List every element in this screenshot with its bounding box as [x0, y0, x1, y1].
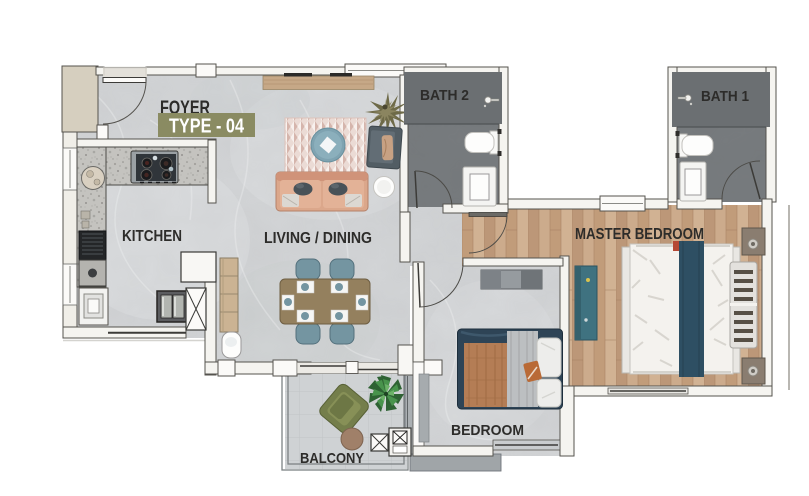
svg-text:KITCHEN: KITCHEN: [122, 228, 182, 245]
svg-text:LIVING / DINING: LIVING / DINING: [264, 230, 372, 247]
svg-text:BEDROOM: BEDROOM: [451, 422, 524, 439]
svg-text:BALCONY: BALCONY: [300, 450, 364, 467]
svg-text:MASTER BEDROOM: MASTER BEDROOM: [575, 226, 704, 243]
svg-text:TYPE - 04: TYPE - 04: [169, 116, 245, 138]
svg-text:BATH 2: BATH 2: [420, 87, 469, 104]
svg-text:BATH 1: BATH 1: [701, 88, 749, 105]
